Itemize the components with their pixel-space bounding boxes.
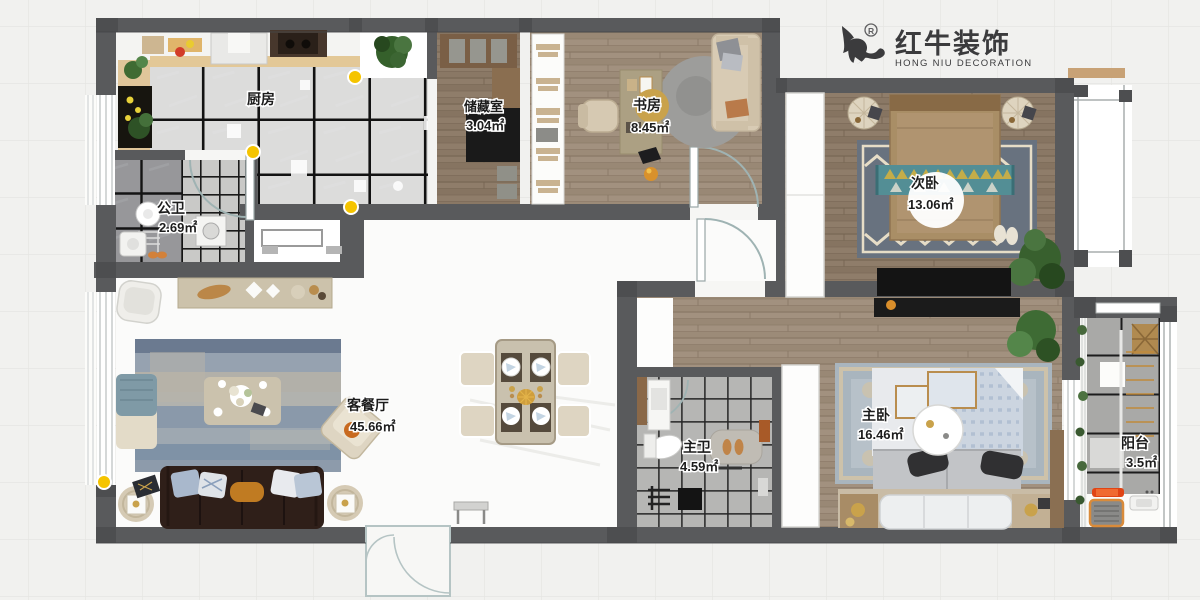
svg-text:次卧: 次卧: [911, 175, 939, 191]
svg-text:4.59㎡: 4.59㎡: [680, 459, 718, 474]
svg-text:R: R: [868, 26, 874, 36]
svg-text:厨房: 厨房: [247, 91, 275, 107]
svg-text:主卫: 主卫: [683, 439, 711, 455]
svg-text:45.66㎡: 45.66㎡: [350, 419, 396, 434]
svg-text:公卫: 公卫: [157, 200, 185, 216]
svg-text:主卧: 主卧: [862, 407, 890, 423]
svg-text:红牛装饰: 红牛装饰: [895, 28, 1011, 59]
svg-text:3.5㎡: 3.5㎡: [1126, 455, 1157, 470]
svg-text:客餐厅: 客餐厅: [346, 397, 389, 413]
svg-text:2.69㎡: 2.69㎡: [159, 220, 197, 235]
svg-text:HONG NIU DECORATION: HONG NIU DECORATION: [895, 58, 1032, 69]
svg-text:16.46㎡: 16.46㎡: [858, 427, 904, 442]
svg-text:书房: 书房: [633, 97, 661, 113]
svg-text:3.04㎡: 3.04㎡: [466, 118, 504, 133]
svg-text:8.45㎡: 8.45㎡: [631, 120, 669, 135]
svg-text:13.06㎡: 13.06㎡: [908, 197, 954, 212]
svg-text:阳台: 阳台: [1121, 435, 1149, 451]
svg-text:储藏室: 储藏室: [463, 99, 503, 114]
